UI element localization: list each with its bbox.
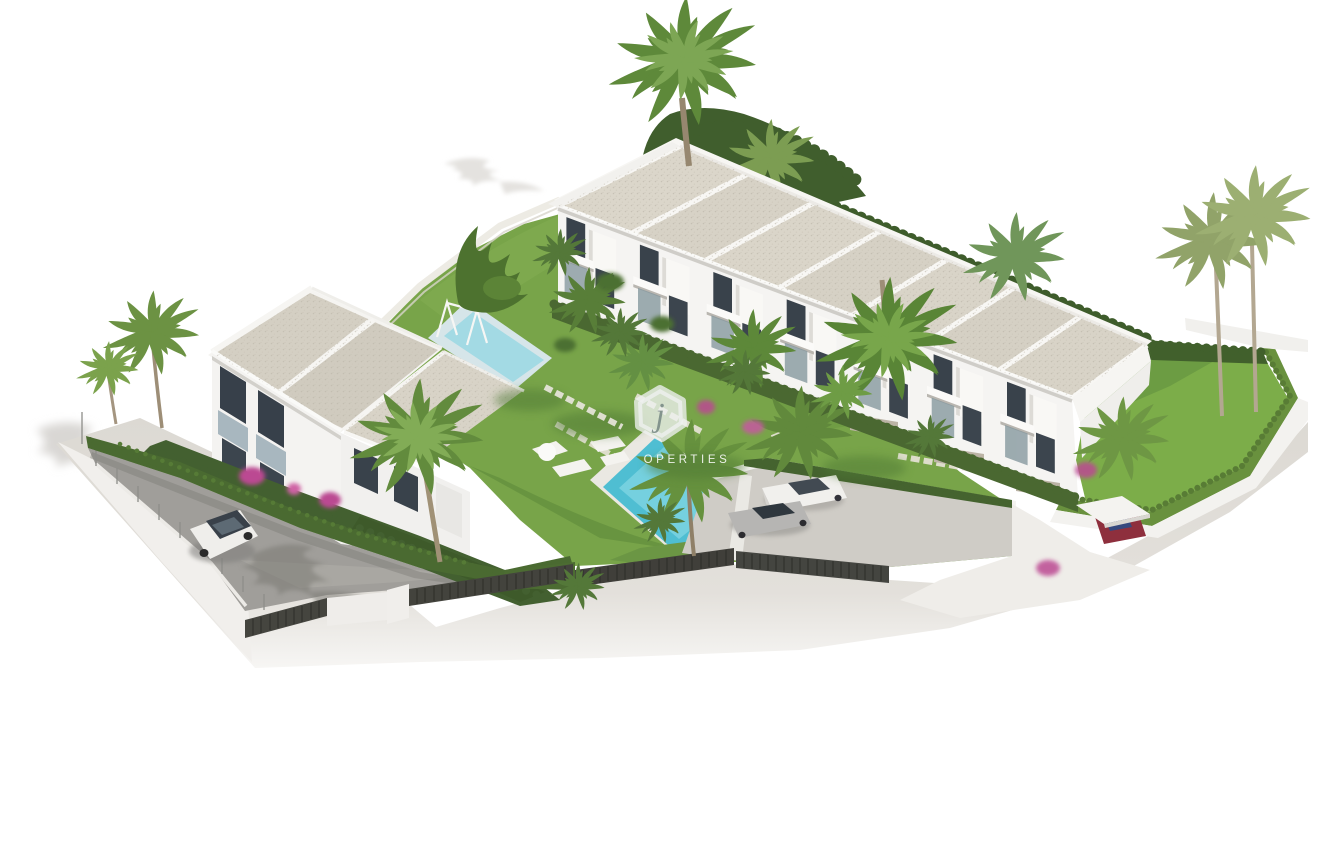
svg-text:OPERTIES: OPERTIES	[644, 454, 731, 466]
